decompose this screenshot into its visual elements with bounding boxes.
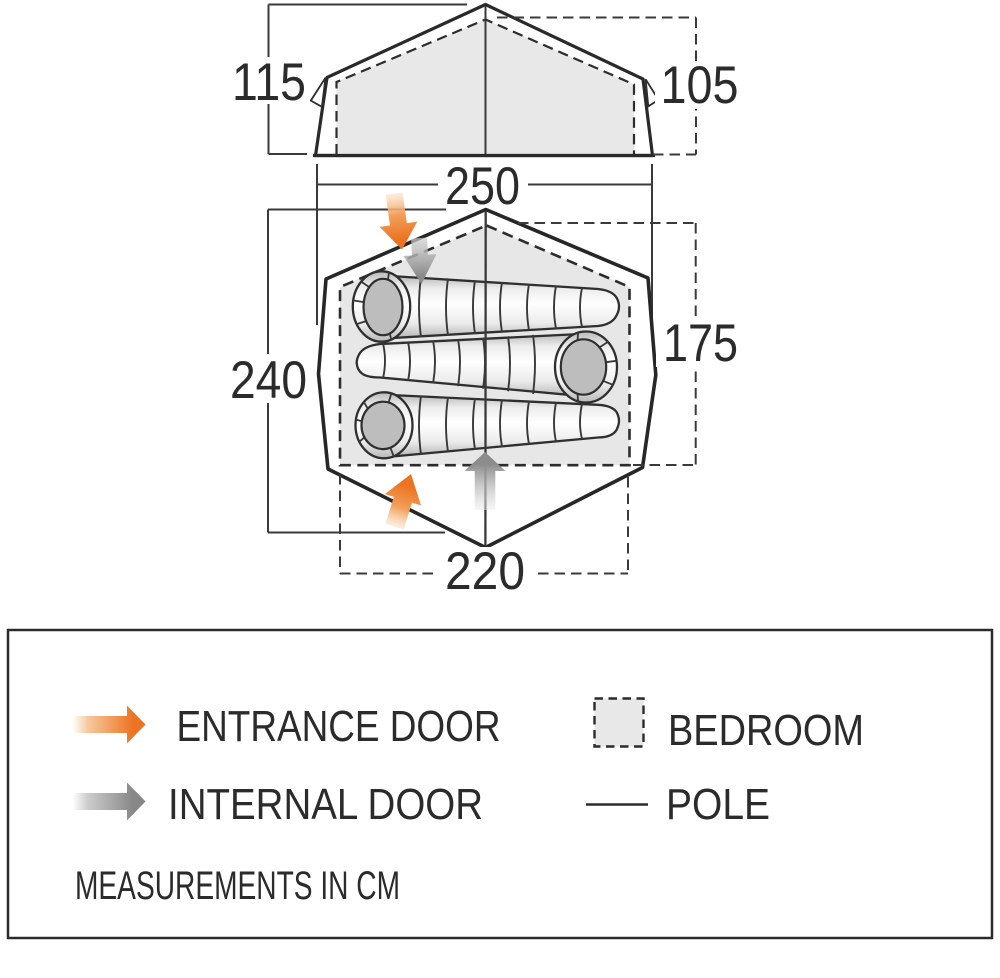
svg-text:175: 175 (663, 314, 738, 373)
svg-text:MEASUREMENTS IN CM: MEASUREMENTS IN CM (75, 864, 400, 908)
svg-text:BEDROOM: BEDROOM (668, 707, 864, 755)
svg-text:115: 115 (232, 53, 306, 112)
svg-text:250: 250 (445, 157, 520, 216)
svg-text:220: 220 (445, 542, 525, 601)
svg-text:ENTRANCE DOOR: ENTRANCE DOOR (177, 703, 501, 751)
svg-text:240: 240 (230, 351, 307, 410)
svg-text:POLE: POLE (666, 781, 770, 829)
svg-text:105: 105 (661, 56, 739, 115)
svg-text:INTERNAL DOOR: INTERNAL DOOR (168, 781, 483, 829)
